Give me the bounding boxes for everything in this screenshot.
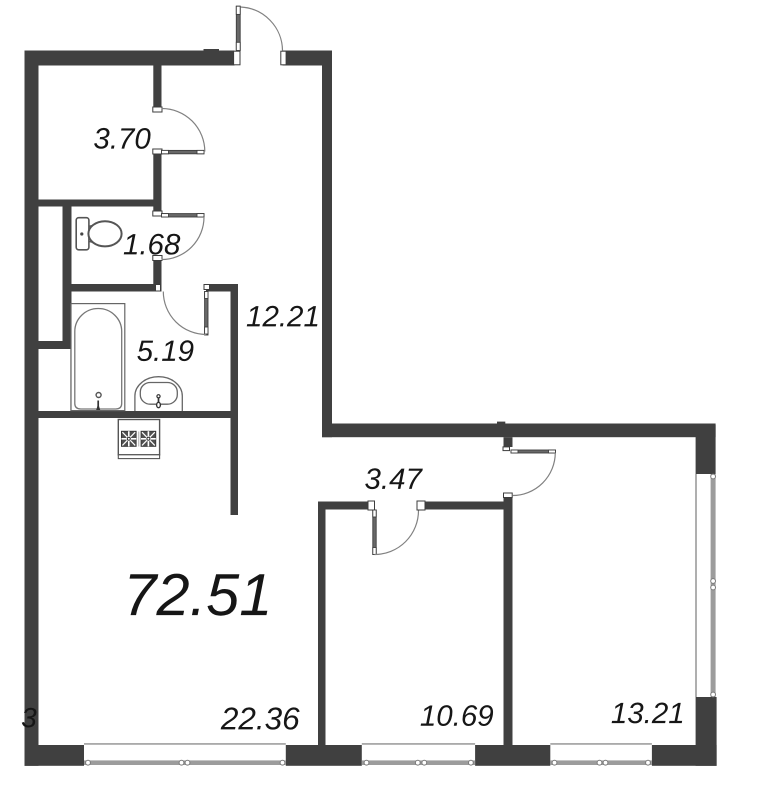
- svg-text:72.51: 72.51: [123, 561, 272, 628]
- svg-text:3.47: 3.47: [364, 463, 423, 496]
- svg-text:3: 3: [21, 702, 37, 733]
- svg-text:10.69: 10.69: [420, 700, 494, 733]
- svg-text:1.68: 1.68: [123, 228, 181, 261]
- svg-text:3.70: 3.70: [93, 123, 151, 156]
- svg-text:5.19: 5.19: [137, 335, 194, 368]
- svg-text:12.21: 12.21: [246, 300, 320, 333]
- svg-text:13.21: 13.21: [611, 697, 685, 730]
- svg-text:22.36: 22.36: [220, 700, 300, 736]
